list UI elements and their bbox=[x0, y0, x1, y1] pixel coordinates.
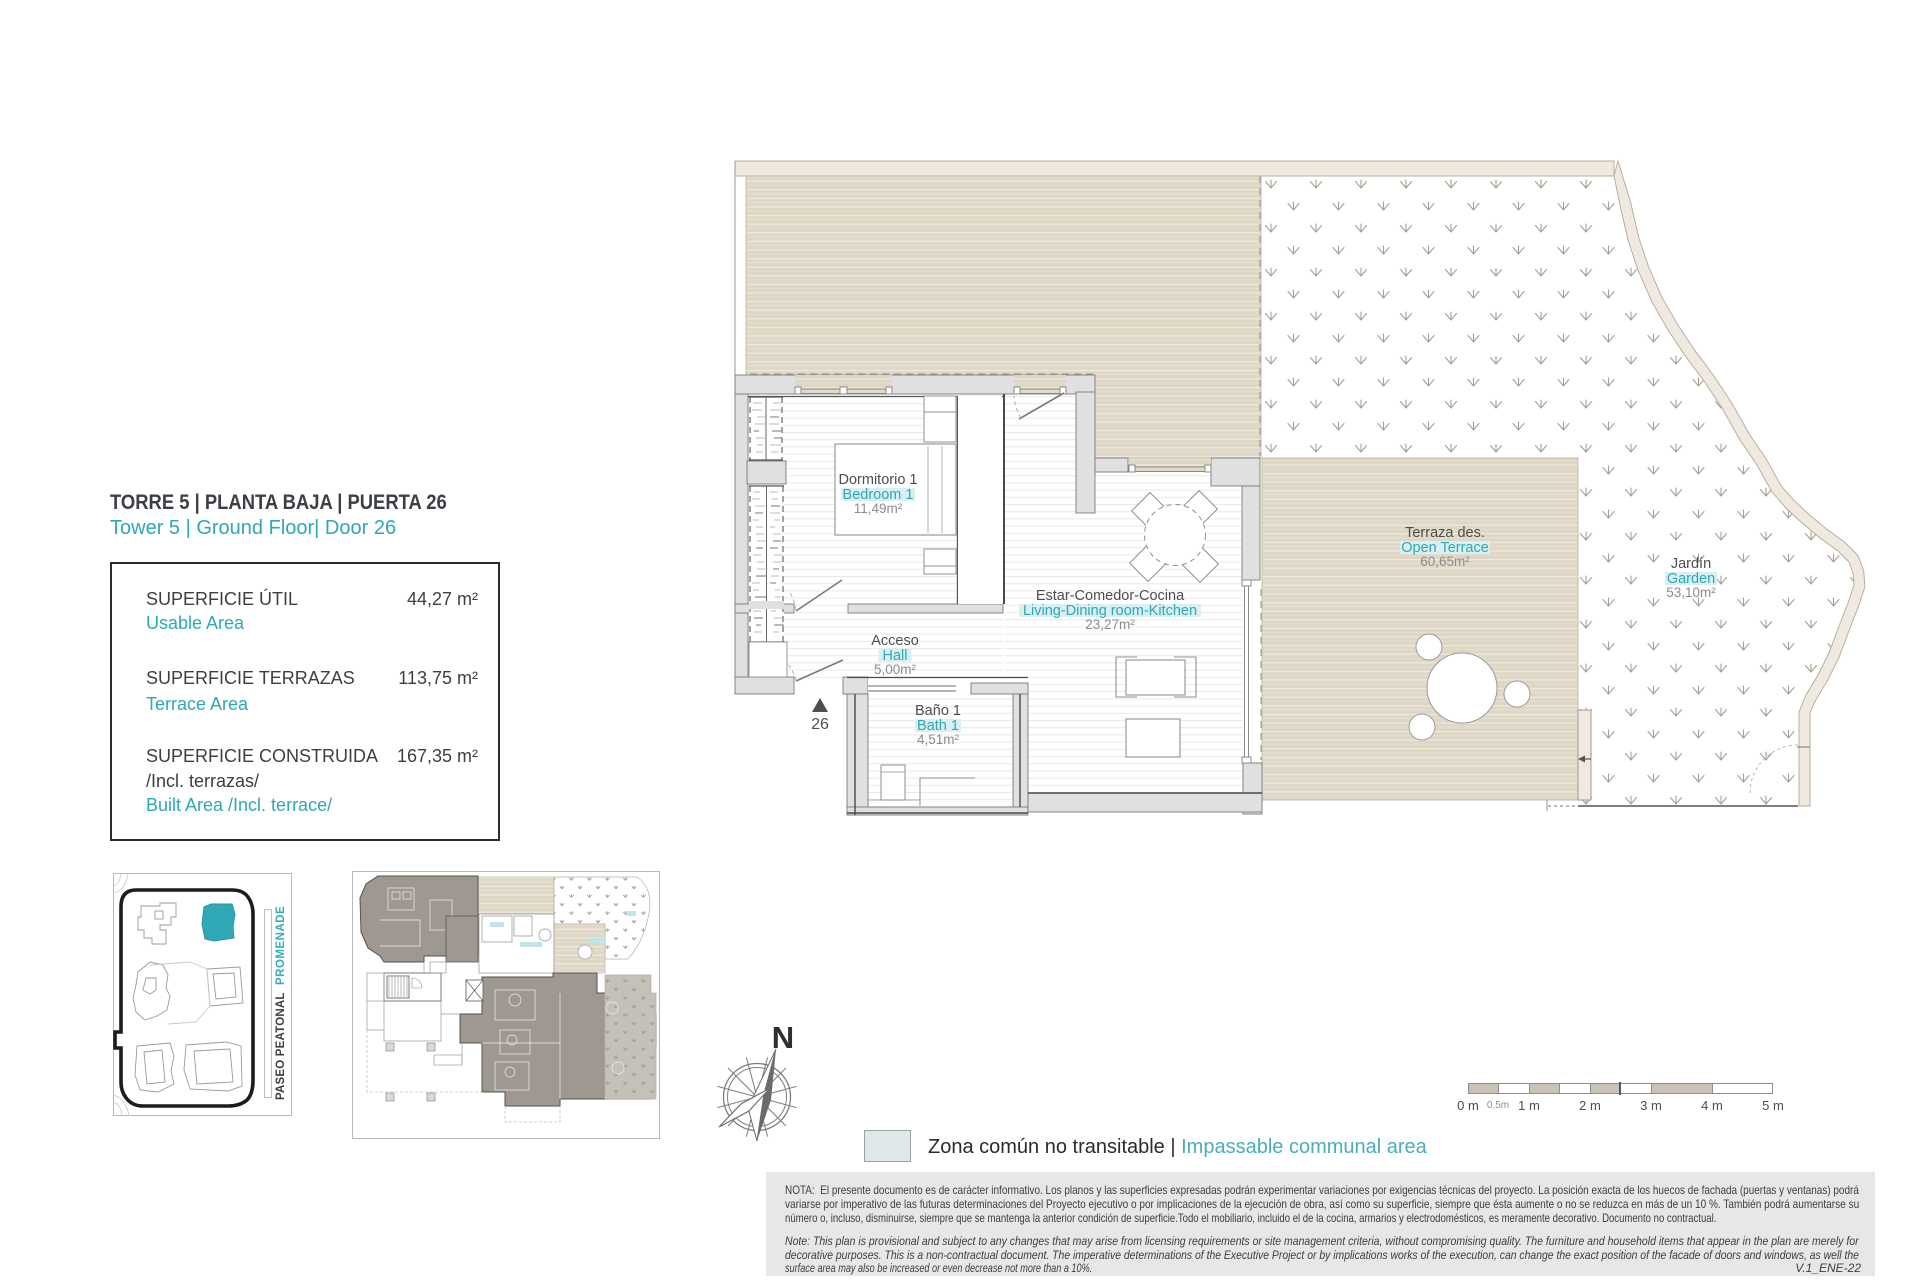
svg-text:N: N bbox=[772, 1020, 794, 1055]
svg-text:PASEO PEATONAL: PASEO PEATONAL bbox=[275, 992, 287, 1100]
svg-text:PROMENADE: PROMENADE bbox=[275, 906, 287, 985]
